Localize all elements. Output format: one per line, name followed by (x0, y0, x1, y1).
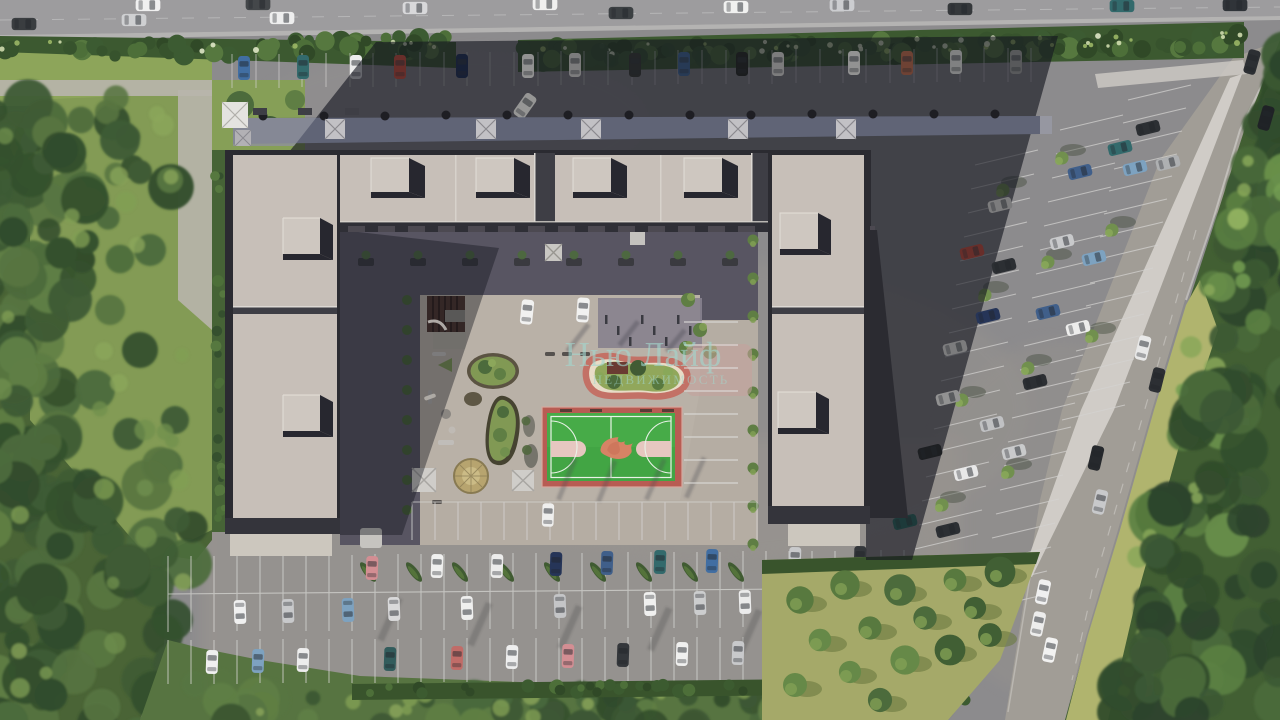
svg-text:НЕДВИЖИМОСТЬ: НЕДВИЖИМОСТЬ (593, 372, 730, 387)
svg-text:Нью Лайф: Нью Лайф (565, 335, 722, 374)
